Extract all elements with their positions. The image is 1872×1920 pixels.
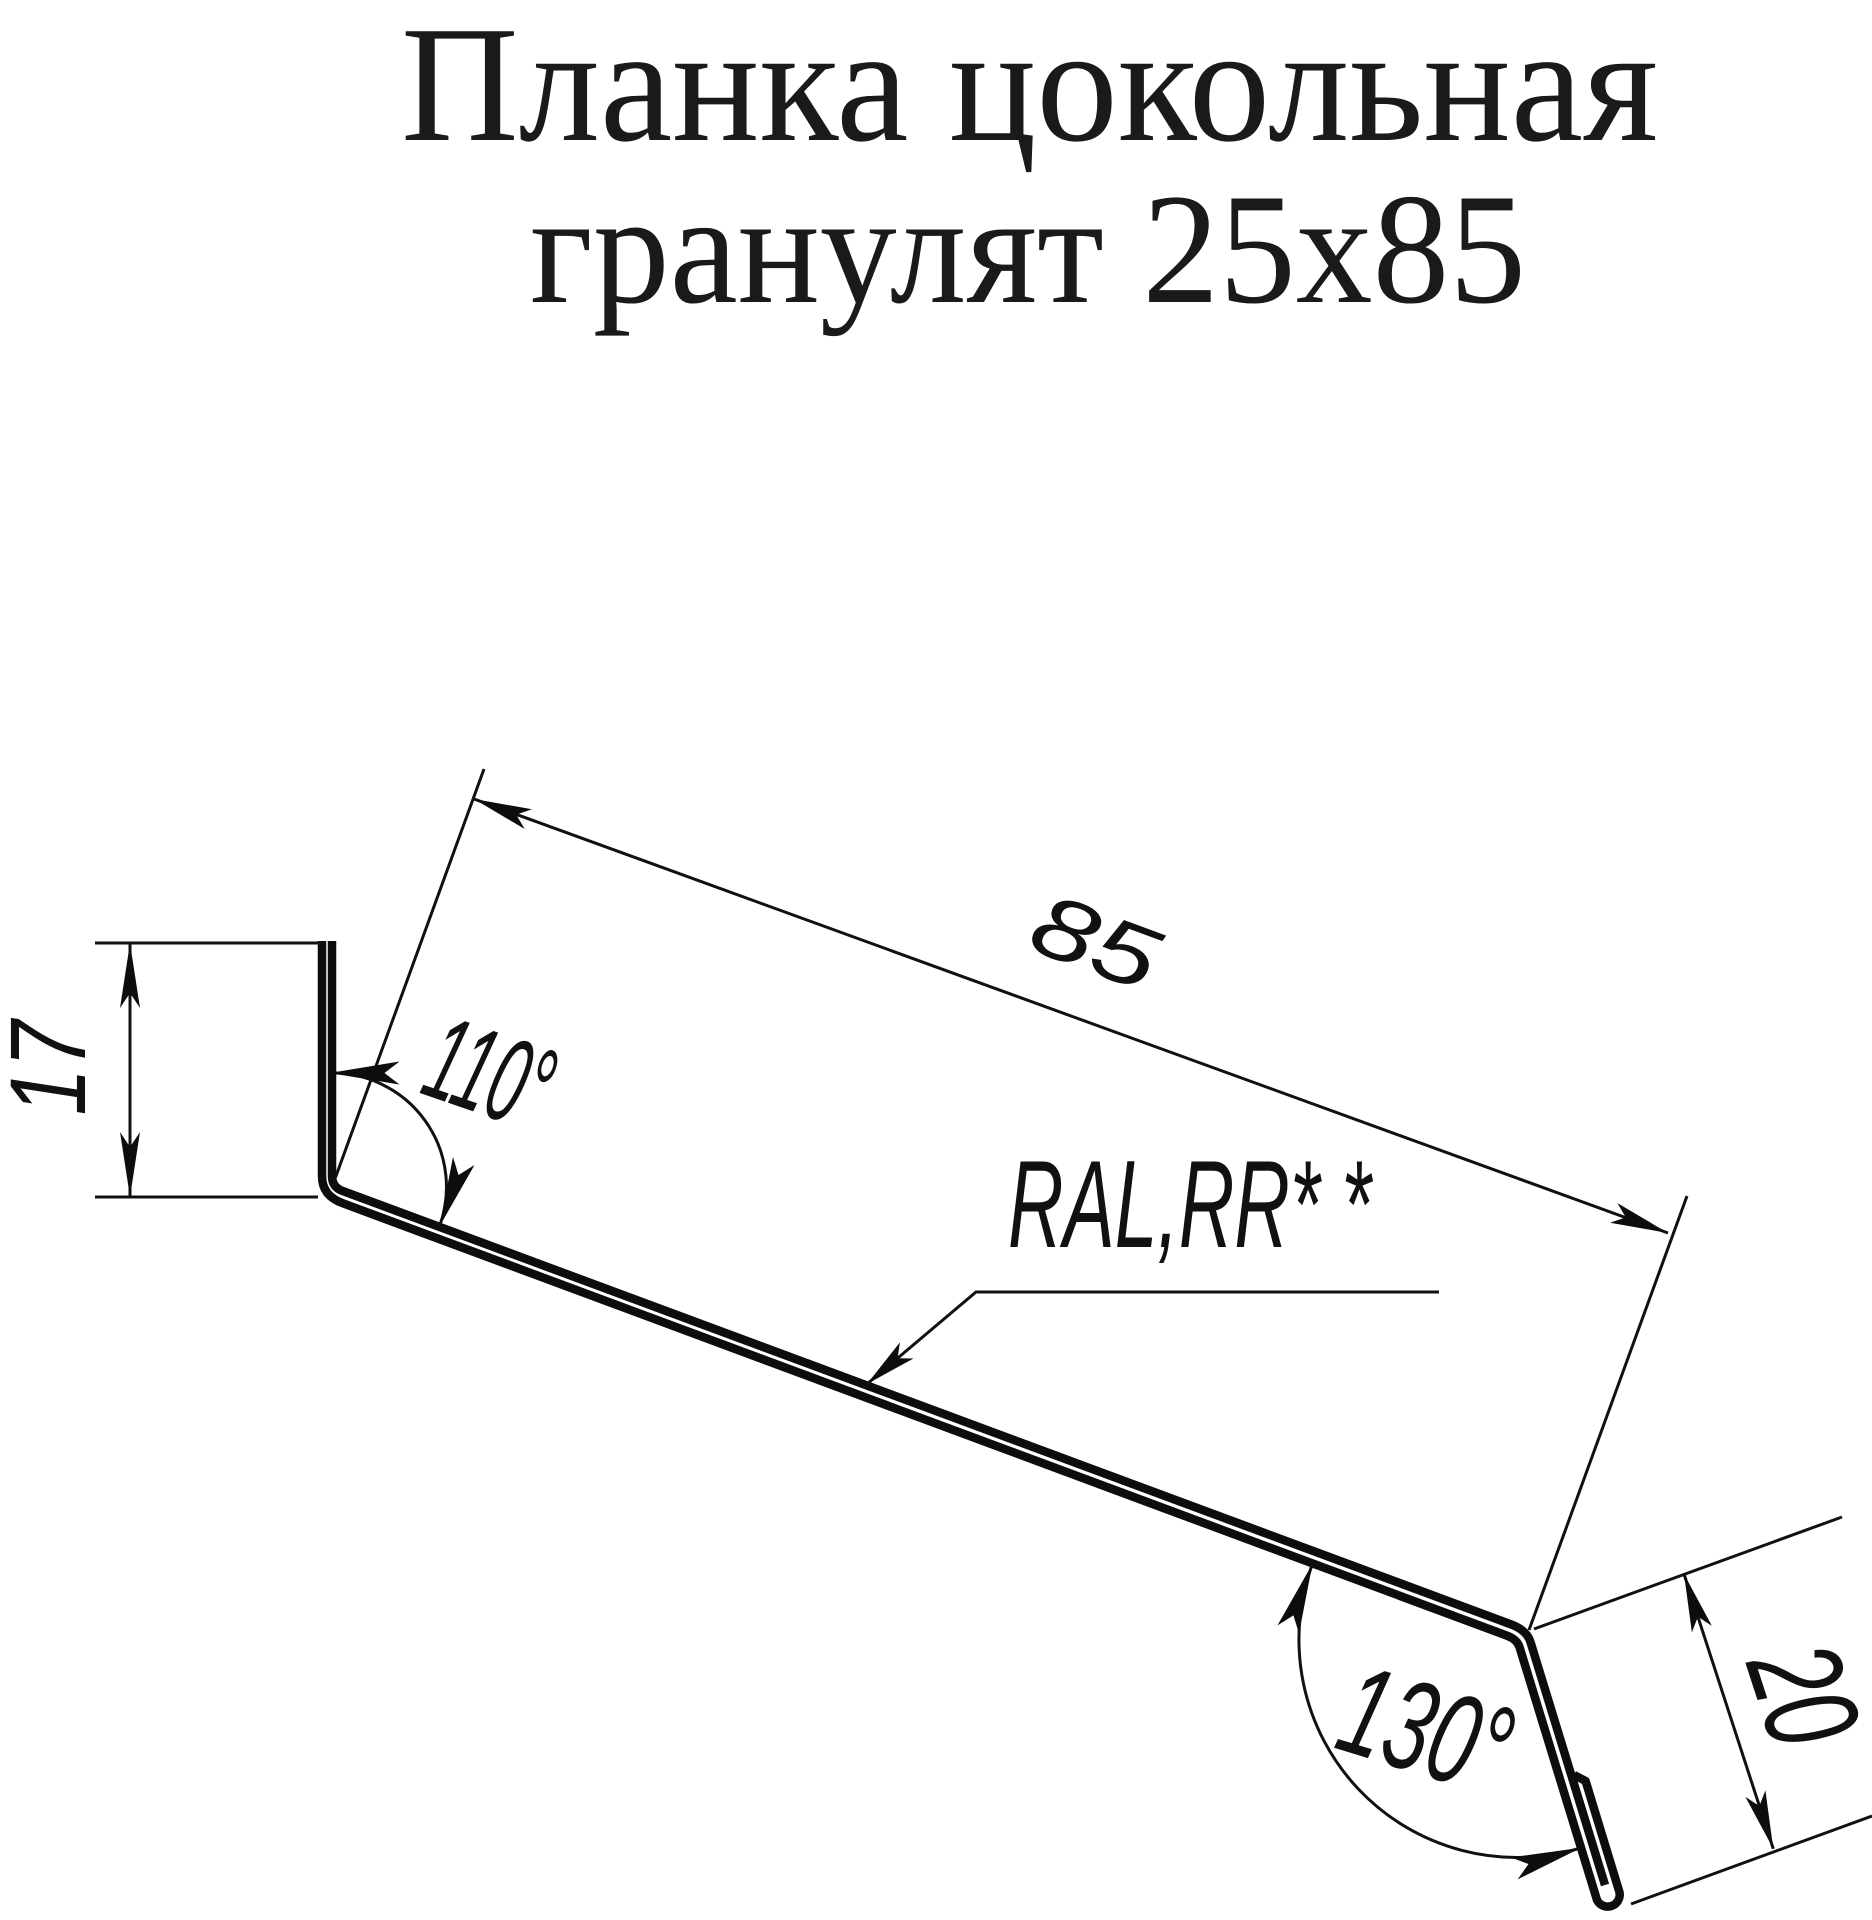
- svg-text:Планка цокольная: Планка цокольная: [401, 0, 1658, 176]
- svg-text:RAL,RR* *: RAL,RR* *: [1008, 1136, 1373, 1274]
- svg-text:гранулят 25х85: гранулят 25х85: [530, 162, 1526, 337]
- svg-text:17: 17: [0, 1017, 108, 1115]
